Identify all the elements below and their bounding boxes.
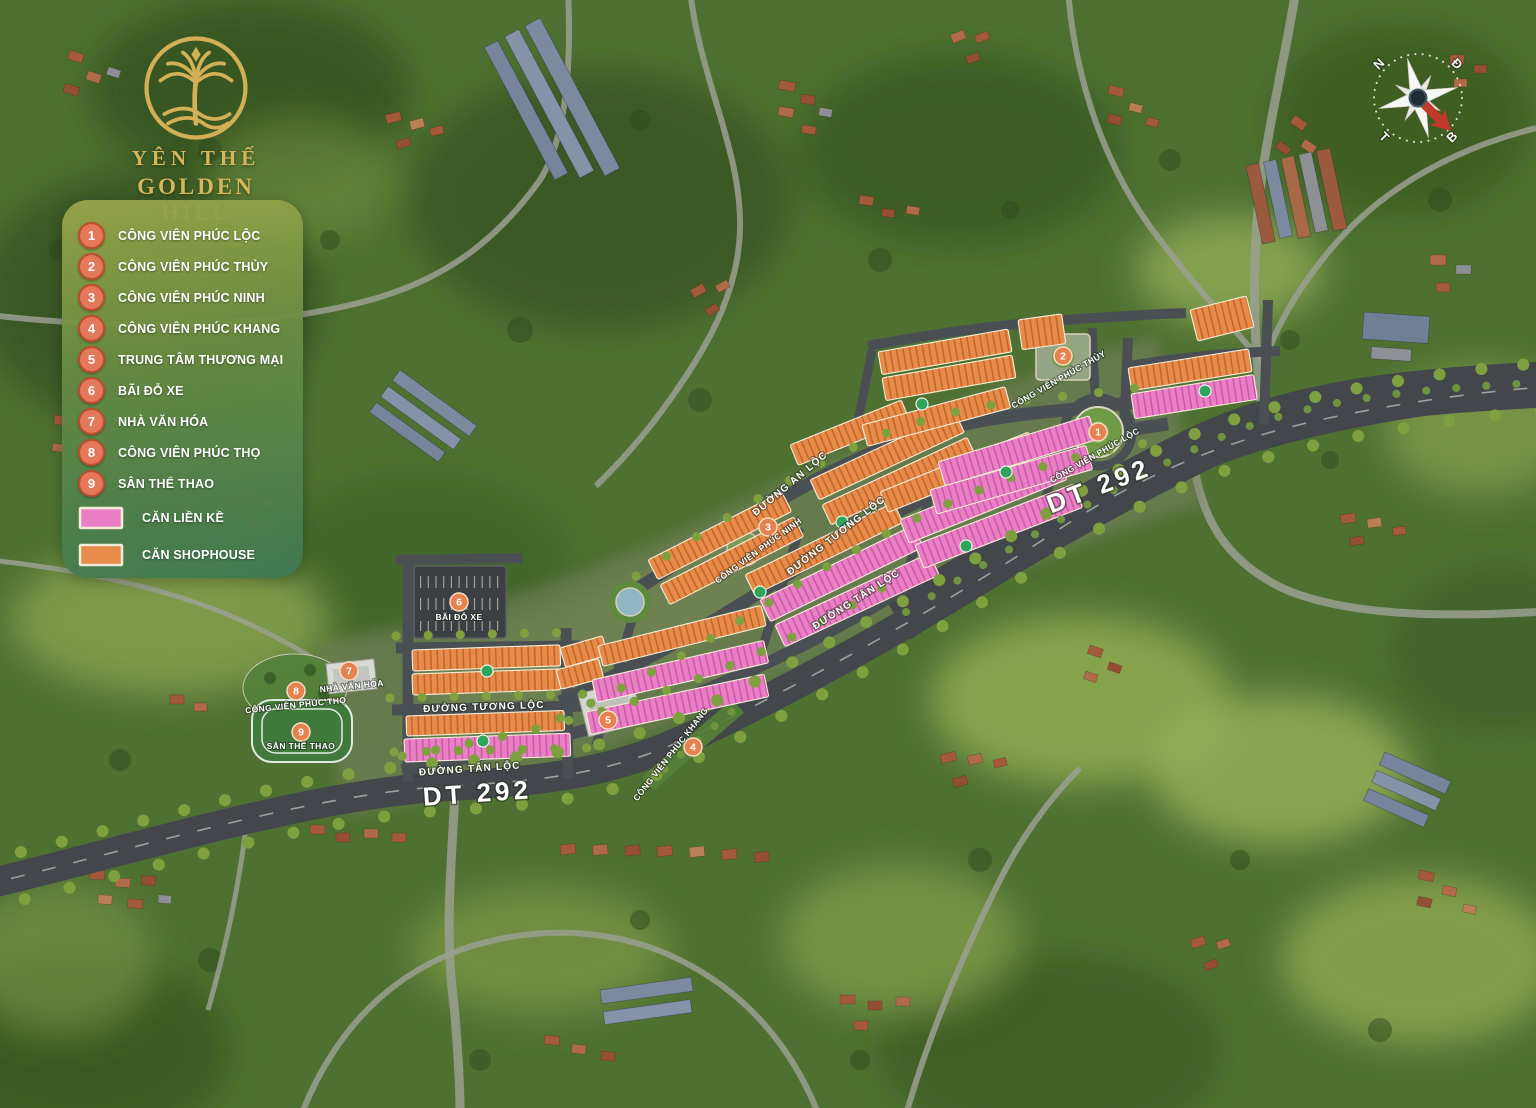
shophouse-swatch-icon bbox=[78, 543, 124, 567]
legend-item-6: 6BÃI ĐỖ XE bbox=[78, 375, 289, 406]
legend-number-badge: 6 bbox=[78, 377, 105, 404]
compass-rose-icon: N Đ B T bbox=[1362, 36, 1474, 160]
logo-title-line1: YÊN THẾ bbox=[112, 146, 280, 171]
legend-item-2: 2CÔNG VIÊN PHÚC THỦY bbox=[78, 251, 289, 282]
legend-item-label: CÔNG VIÊN PHÚC THỦY bbox=[118, 260, 268, 274]
svg-text:4: 4 bbox=[690, 742, 696, 754]
map-label-9: SÂN THỂ THAO bbox=[267, 740, 336, 751]
map-marker-7: 7 bbox=[340, 662, 358, 680]
legend-number-badge: 5 bbox=[78, 346, 105, 373]
legend-number-badge: 9 bbox=[78, 470, 105, 497]
legend-number-badge: 1 bbox=[78, 222, 105, 249]
legend-item-7: 7NHÀ VĂN HÓA bbox=[78, 406, 289, 437]
legend-item-label: CÔNG VIÊN PHÚC THỌ bbox=[118, 446, 261, 460]
legend-item-label: CÔNG VIÊN PHÚC NINH bbox=[118, 291, 265, 305]
compass-letter-t: T bbox=[1376, 129, 1392, 145]
svg-text:7: 7 bbox=[346, 666, 352, 678]
svg-text:8: 8 bbox=[293, 686, 299, 698]
legend-item-label: CÔNG VIÊN PHÚC LỘC bbox=[118, 229, 261, 243]
legend-swatch-shophouse: CĂN SHOPHOUSE bbox=[78, 536, 289, 573]
lienke-swatch-icon bbox=[78, 506, 124, 530]
legend-panel: 1CÔNG VIÊN PHÚC LỘC 2CÔNG VIÊN PHÚC THỦY… bbox=[62, 200, 303, 578]
map-marker-9: 9 bbox=[292, 723, 310, 741]
legend-item-8: 8CÔNG VIÊN PHÚC THỌ bbox=[78, 437, 289, 468]
compass-letter-d: Đ bbox=[1449, 55, 1466, 72]
legend-item-9: 9SÂN THỂ THAO bbox=[78, 468, 289, 499]
legend-number-badge: 4 bbox=[78, 315, 105, 342]
logo-emblem-icon bbox=[140, 32, 252, 144]
legend-swatch-label: CĂN SHOPHOUSE bbox=[142, 548, 255, 562]
shophouse-block bbox=[1018, 314, 1066, 350]
legend-item-label: CÔNG VIÊN PHÚC KHANG bbox=[118, 322, 280, 336]
svg-text:2: 2 bbox=[1060, 351, 1066, 363]
legend-item-4: 4CÔNG VIÊN PHÚC KHANG bbox=[78, 313, 289, 344]
legend-item-label: SÂN THỂ THAO bbox=[118, 477, 214, 491]
masterplan-map: ĐƯỜNG TÂN LỘC DT 292 DT 292 ĐƯỜNG TÂN LỘ… bbox=[0, 0, 1536, 1108]
compass-letter-n: N bbox=[1370, 55, 1387, 72]
map-marker-6: 6 bbox=[450, 593, 468, 611]
legend-item-1: 1CÔNG VIÊN PHÚC LỘC bbox=[78, 220, 289, 251]
map-marker-2: 2 bbox=[1054, 347, 1072, 365]
svg-text:6: 6 bbox=[456, 597, 462, 609]
map-marker-1: 1 bbox=[1089, 423, 1107, 441]
legend-swatch-label: CĂN LIỀN KỀ bbox=[142, 511, 224, 525]
svg-text:1: 1 bbox=[1095, 427, 1101, 439]
svg-text:9: 9 bbox=[298, 727, 304, 739]
legend-number-badge: 7 bbox=[78, 408, 105, 435]
svg-text:3: 3 bbox=[765, 522, 771, 534]
svg-text:5: 5 bbox=[605, 715, 611, 727]
legend-number-badge: 8 bbox=[78, 439, 105, 466]
legend-item-3: 3CÔNG VIÊN PHÚC NINH bbox=[78, 282, 289, 313]
legend-item-label: NHÀ VĂN HÓA bbox=[118, 415, 208, 429]
map-marker-5: 5 bbox=[599, 711, 617, 729]
project-logo: YÊN THẾ GOLDEN HILL bbox=[112, 32, 280, 226]
legend-number-badge: 2 bbox=[78, 253, 105, 280]
map-label-6: BÃI ĐỖ XE bbox=[435, 611, 482, 622]
legend-number-badge: 3 bbox=[78, 284, 105, 311]
legend-item-label: BÃI ĐỖ XE bbox=[118, 384, 184, 398]
legend-item-5: 5TRUNG TÂM THƯƠNG MẠI bbox=[78, 344, 289, 375]
legend-swatch-lienke: CĂN LIỀN KỀ bbox=[78, 499, 289, 536]
compass-letter-b: B bbox=[1443, 128, 1460, 145]
legend-item-label: TRUNG TÂM THƯƠNG MẠI bbox=[118, 353, 283, 367]
map-marker-8: 8 bbox=[287, 682, 305, 700]
